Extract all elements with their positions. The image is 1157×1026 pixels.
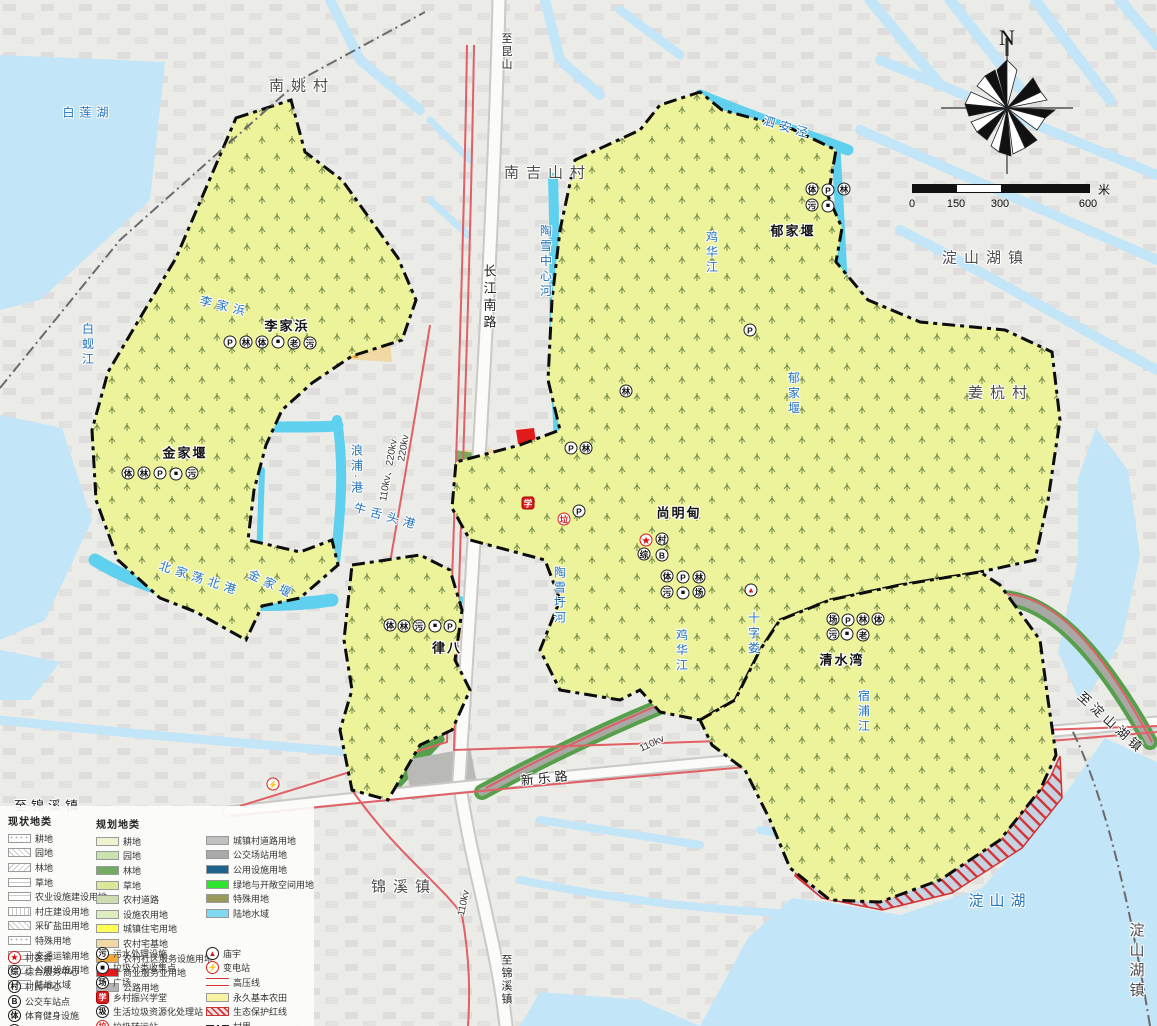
map-facility-icon: 污 [186,467,199,480]
legend-header-current: 现状地类 [8,813,94,828]
legend-swatch [206,836,229,845]
legend-symbol: ▲ [206,947,219,960]
scale-seg [957,185,1001,192]
map-facility-icon: 污 [827,628,840,641]
legend-item-label: 公交场站用地 [233,848,287,861]
legend-item: 公交场站用地 [206,848,312,863]
legend-swatch [96,837,119,846]
legend-item: 村庄建设用地 [8,904,94,919]
legend-item-label: 村庄建设用地 [35,905,89,918]
map-facility-icon: 场 [827,613,840,626]
legend-swatch [206,865,229,874]
map-facility-icon: ■ [170,468,183,481]
planning-map: 南姚村至昆山南吉山村泗安泾淀山湖镇郁家堰姜杭村白莲湖李家浜李家浜白蚬江金家堰金家… [0,0,1157,1026]
map-facility-icon: 林 [620,385,633,398]
legend-icon: ■ [96,961,109,974]
map-facility-icon: 林 [398,620,411,633]
scale-seg [913,185,957,192]
map-facility-icon: 场 [693,586,706,599]
legend-item-label: 垃圾转运站 [113,1020,158,1026]
legend-item-label: 变电站 [223,961,250,974]
map-facility-icon: P [444,620,457,633]
legend-item: 特殊用地 [206,891,312,906]
legend-item-label: 农村道路 [123,893,159,906]
map-facility-icon: 林 [838,183,851,196]
map-facility-icon: 污 [304,337,317,350]
legend-swatch [206,880,229,889]
legend-item-label: 陆地水域 [233,907,269,920]
map-facility-icon: P [565,442,578,455]
legend-item: 园地 [8,846,94,861]
legend-item: 体体育健身设施 [8,1008,94,1023]
legend-swatch [8,936,31,945]
map-facility-icon: 村 [656,533,669,546]
legend-item: 陆地水域 [206,906,312,921]
legend-item: 场广场 [96,975,204,990]
legend-item: 设施农用地 [96,907,206,922]
map-facility-icon: P [677,571,690,584]
legend-swatch [8,907,31,916]
legend-item-label: 设施农用地 [123,908,168,921]
legend-item: 农村道路 [96,892,206,907]
map-facility-icon: 体 [384,619,397,632]
map-facility-icon: 学 [522,497,535,510]
legend-swatch [206,850,229,859]
map-facility-icon: 林 [857,613,870,626]
map-facility-icon: 林 [693,571,706,584]
legend-item-label: 生活垃圾资源化处理站 [113,1005,203,1018]
legend-swatch [8,848,31,857]
map-facility-icon: 林 [580,442,593,455]
legend-item: 采矿盐田用地 [8,919,94,934]
legend-swatch [8,878,31,887]
map-facility-icon: P [224,336,237,349]
map-facility-icon: 体 [256,336,269,349]
legend-item: 林地 [96,863,206,878]
legend-item-label: 广场 [113,976,131,989]
legend-item: 综综合服务中心 [8,965,94,980]
legend-item-label: 体育健身设施 [25,1009,79,1022]
map-facility-icon: ▲ [745,584,758,597]
legend-item: 高压线 [206,975,312,990]
map-facility-icon: ■ [429,620,442,633]
legend-item: 草地 [8,875,94,890]
legend-item: 村界 [206,1019,312,1026]
legend-item-label: 公交车站点 [25,995,70,1008]
legend-item-label: 生态保护红线 [233,1005,287,1018]
scale-bar-unit: 米 [1098,181,1110,198]
legend-symbol: ⚡ [206,961,219,974]
map-facility-icon: P [842,614,855,627]
legend-item: ▲庙宇 [206,946,312,961]
legend-icon: 圾 [96,1005,109,1018]
legend-item-label: 乡村振兴学堂 [113,991,167,1004]
legend-header-planned: 规划地类 [96,816,206,831]
legend-item: B公交车站点 [8,994,94,1009]
map-facility-icon: 林 [138,467,151,480]
legend-item-label: 综合服务中心 [25,965,79,978]
legend-item-label: 公用设施用地 [233,863,287,876]
legend-item-label: 高压线 [233,976,260,989]
legend-swatch [8,892,31,901]
map-facility-icon: ■ [272,336,285,349]
map-facility-icon: 体 [872,613,885,626]
legend-swatch [206,909,229,918]
legend-item-label: 特殊用地 [233,892,269,905]
legend-item: 绿地与开敞空间用地 [206,877,312,892]
legend-icon: 场 [96,976,109,989]
legend-current-icons: ★村委会综综合服务中心村村民中心B公交车站点体体育健身设施P停车场林公园 [8,950,94,1026]
map-facility-icon: P [154,467,167,480]
legend-icon: B [8,995,21,1008]
legend-item: 城镇村道路用地 [206,833,312,848]
map-facility-icon: ★ [640,534,653,547]
map-facility-icon: P [744,324,757,337]
legend-item: 垃垃圾转运站 [96,1019,204,1026]
legend-swatch [96,895,119,904]
legend-swatch [206,894,229,903]
legend-symbol [206,1007,229,1016]
legend-item-label: 城镇村道路用地 [233,834,296,847]
legend-icon: 体 [8,1009,21,1022]
legend-item-label: 污水处理设施 [113,947,167,960]
legend-item-label: 园地 [35,846,53,859]
scale-tick-label: 300 [991,198,1009,210]
legend-item: 耕地 [96,834,206,849]
legend-item-label: 采矿盐田用地 [35,919,89,932]
legend-item-label: 垃圾分类收集点 [113,961,176,974]
legend-swatch [96,924,119,933]
legend-item-label: 草地 [123,879,141,892]
legend-item-label: 园地 [123,849,141,862]
legend-item: 园地 [96,849,206,864]
legend-swatch [96,866,119,875]
legend-item-label: 林地 [35,861,53,874]
legend-swatch [8,863,31,872]
map-facility-icon: P [573,505,586,518]
map-facility-icon: ■ [677,587,690,600]
legend-swatch [96,910,119,919]
legend-item: 村村民中心 [8,979,94,994]
legend-item: ⚡变电站 [206,961,312,976]
legend-planned-items-2: 城镇村道路用地公交场站用地公用设施用地绿地与开敞空间用地特殊用地陆地水域 [206,833,312,921]
legend-item: 农业设施建设用地 [8,889,94,904]
legend-item: 草地 [96,878,206,893]
legend-icon: 村 [8,980,21,993]
map-facility-icon: 垃 [558,513,571,526]
legend-item-label: 绿地与开敞空间用地 [233,878,314,891]
legend-swatch [96,881,119,890]
legend-item-label: 永久基本农田 [233,991,287,1004]
map-facility-icon: B [656,549,669,562]
legend-icon: 综 [8,965,21,978]
legend-icon: 污 [96,947,109,960]
legend-facility-icons: 污污水处理设施■垃圾分类收集点场广场学乡村振兴学堂圾生活垃圾资源化处理站垃垃圾转… [96,946,204,1026]
map-facility-icon: 老 [288,337,301,350]
legend-item-label: 草地 [35,876,53,889]
legend-swatch [8,834,31,843]
legend-item-label: 庙宇 [223,947,241,960]
legend-item: 污污水处理设施 [96,946,204,961]
map-facility-icon: 污 [661,586,674,599]
scale-bar-segments [912,184,1090,193]
legend-item-label: 城镇住宅用地 [123,922,177,935]
legend-swatch [96,851,119,860]
legend-symbol [206,993,229,1002]
map-facility-icon: ■ [822,200,835,213]
legend-item: 生态保护红线 [206,1004,312,1019]
legend-item-label: 特殊用地 [35,934,71,947]
legend-item: 城镇住宅用地 [96,922,206,937]
legend-line-symbols: ▲庙宇⚡变电站高压线永久基本农田生态保护红线村界镇界 [206,946,312,1026]
scale-seg [1001,185,1089,192]
legend-symbol [206,978,229,986]
legend-item: 永久基本农田 [206,990,312,1005]
legend-item: 耕地 [8,831,94,846]
legend-item: ■垃圾分类收集点 [96,961,204,976]
map-facility-icon: 综 [638,548,651,561]
scale-tick-label: 600 [1079,198,1097,210]
scale-bar: 0150300600 米 [912,181,1112,215]
legend-item: 特殊用地 [8,933,94,948]
legend-item: 林地 [8,860,94,875]
legend-panel: 现状地类 耕地园地林地草地农业设施建设用地村庄建设用地采矿盐田用地特殊用地交通运… [0,806,314,1026]
legend-item: 圾生活垃圾资源化处理站 [96,1004,204,1019]
legend-item: 学乡村振兴学堂 [96,990,204,1005]
legend-item-label: 林地 [123,864,141,877]
map-facility-icon: P [822,184,835,197]
legend-item-label: 耕地 [123,835,141,848]
legend-item: 公用设施用地 [206,862,312,877]
map-facility-icon: 体 [806,183,819,196]
map-facility-icon: 体 [661,570,674,583]
map-facility-icon: 老 [857,629,870,642]
legend-item-label: 耕地 [35,832,53,845]
map-facility-icon: ⚡ [267,778,280,791]
legend-item-label: 村委会 [25,951,52,964]
legend-swatch [8,921,31,930]
legend-icon: 学 [96,991,109,1004]
legend-item-label: 村民中心 [25,980,61,993]
map-facility-icon: 污 [413,620,426,633]
legend-icon: ★ [8,951,21,964]
legend-item-label: 村界 [233,1020,251,1026]
map-facility-icon: 体 [122,467,135,480]
legend-icon: 垃 [96,1020,109,1026]
north-arrow-label: N [999,25,1015,51]
scale-tick-label: 0 [909,198,915,210]
scale-tick-label: 150 [947,198,965,210]
map-facility-icon: ■ [841,628,854,641]
map-facility-icon: 污 [806,199,819,212]
legend-item: ★村委会 [8,950,94,965]
map-facility-icon: 林 [240,336,253,349]
